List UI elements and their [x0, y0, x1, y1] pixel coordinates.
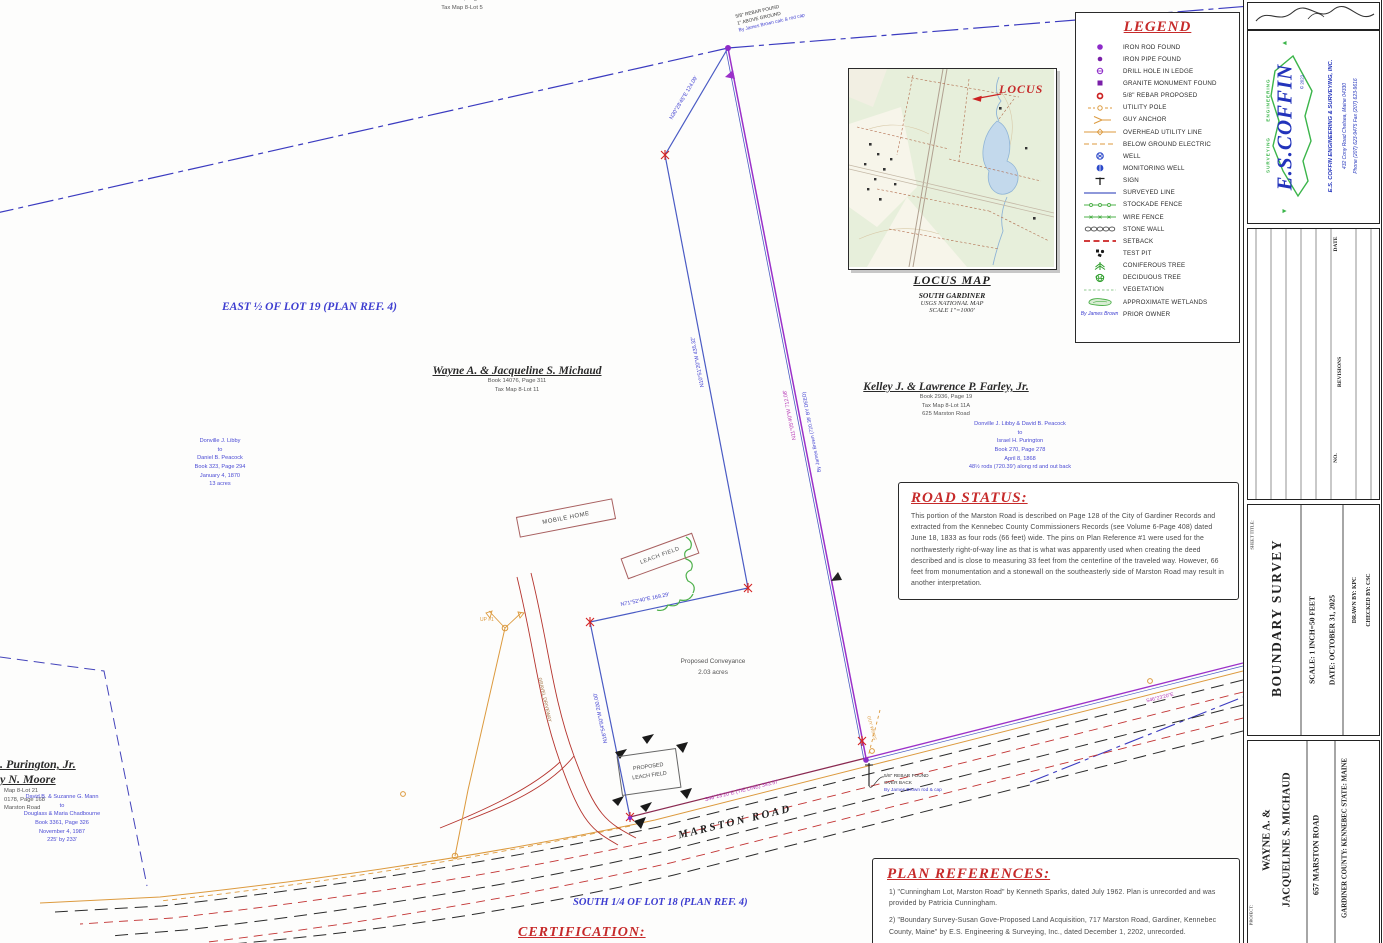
legend-label: WELL — [1123, 153, 1141, 160]
legend-label: TEST PIT — [1123, 250, 1152, 257]
note-line: 5/8" REBAR FOUND — [884, 773, 942, 780]
revisions-no-header: NO. — [1333, 453, 1339, 463]
legend-label: VEGETATION — [1123, 286, 1164, 293]
deed-line: to — [24, 802, 101, 811]
sheet-scale: SCALE: 1 INCH=50 FEET — [1308, 596, 1317, 684]
project-name-2: JACQUELINE S. MICHAUD — [1282, 772, 1293, 907]
locus-scale: SCALE 1"=1000' — [913, 307, 990, 314]
legend-row: GRANITE MONUMENT FOUND — [1076, 77, 1239, 89]
legend-label: IRON ROD FOUND — [1123, 44, 1180, 51]
legend-row: CONIFEROUS TREE — [1076, 260, 1239, 272]
deed-note-right: Donville J. Libby & David B. Peacock to … — [969, 420, 1071, 472]
locus-map-image — [849, 69, 1054, 267]
legend-title: LEGEND — [1076, 19, 1239, 36]
plan-reference-item: 2) "Boundary Survey-Susan Gove-Proposed … — [887, 915, 1225, 937]
legend-label: WIRE FENCE — [1123, 214, 1164, 221]
legend-panel: LEGEND IRON ROD FOUND IRON PIPE FOUND DR… — [1075, 12, 1240, 343]
company-surveying: SURVEYING — [1266, 137, 1271, 173]
legend-label: APPROXIMATE WETLANDS — [1123, 299, 1207, 306]
deed-line: April 8, 1868 — [969, 455, 1071, 464]
revisions-header: REVISIONS — [1337, 357, 1343, 387]
legend-label: SURVEYED LINE — [1123, 189, 1175, 196]
legend-row: STOCKADE FENCE — [1076, 199, 1239, 211]
deed-line: Book 270, Page 278 — [969, 446, 1071, 455]
vegetation-icon — [1076, 285, 1123, 295]
legend-label: SETBACK — [1123, 238, 1153, 245]
drill-hole-in-ledge-icon — [1076, 66, 1123, 76]
south-lot-label: SOUTH 1/4 OF LOT 18 (PLAN REF. 4) — [573, 897, 748, 908]
legend-label: UTILITY POLE — [1123, 104, 1167, 111]
sheet-title: BOUNDARY SURVEY — [1269, 539, 1285, 697]
locus-callout: LOCUS — [999, 82, 1043, 97]
monitoring-well-icon — [1076, 163, 1123, 173]
owner-tax: Tax Map 8-Lot 11A — [863, 402, 1028, 411]
legend-label: GUY ANCHOR — [1123, 116, 1167, 123]
monument-note-bottom: 5/8" REBAR FOUND OVER BACK By James Brow… — [884, 773, 942, 795]
iron-rod-found-icon — [1076, 42, 1123, 52]
stockade-fence-icon — [1076, 200, 1123, 210]
legend-label: STOCKADE FENCE — [1123, 201, 1182, 208]
legend-row: WELL — [1076, 150, 1239, 162]
owner-name: Kelley J. & Lawrence P. Farley, Jr. — [863, 381, 1028, 393]
company-name-logo: E.S.COFFIN — [1273, 64, 1298, 191]
sign-icon — [1076, 176, 1123, 186]
road-status-panel: ROAD STATUS: This portion of the Marston… — [898, 482, 1239, 600]
legend-row: TEST PIT — [1076, 247, 1239, 259]
deed-line: Book 3361, Page 326 — [24, 819, 101, 828]
legend-row: GUY ANCHOR — [1076, 114, 1239, 126]
deed-line: Donville J. Libby — [195, 437, 246, 446]
locus-subtitle: SOUTH GARDINER — [913, 291, 990, 300]
coniferous-tree-icon — [1076, 261, 1123, 271]
test-pit-icon — [1076, 248, 1123, 258]
surveyed-boundary — [590, 48, 866, 817]
project-name-1: WAYNE A. & — [1262, 809, 1273, 871]
project-label: PROJECT: — [1249, 905, 1254, 925]
deed-note-left: Donville J. Libby to Daniel B. Peacock B… — [195, 437, 246, 489]
deed-line: November 4, 1987 — [24, 828, 101, 837]
conveyance-label: Proposed Conveyance 2.03 acres — [681, 657, 746, 679]
monuments — [586, 45, 884, 822]
legend-row: By James BrownPRIOR OWNER — [1076, 308, 1239, 320]
deed-line: January 4, 1870 — [195, 472, 246, 481]
legend-label: BELOW GROUND ELECTRIC — [1123, 141, 1211, 148]
east-boundary-line — [725, 48, 866, 758]
legend-row: OVERHEAD UTILITY LINE — [1076, 126, 1239, 138]
certification-title: CERTIFICATION: — [518, 925, 646, 941]
iron-pipe-found-icon — [1076, 54, 1123, 64]
legend-row: BELOW GROUND ELECTRIC — [1076, 138, 1239, 150]
legend-row: STONE WALL — [1076, 223, 1239, 235]
deed-line: to — [969, 429, 1071, 438]
east-lot-label: EAST ½ OF LOT 19 (PLAN REF. 4) — [222, 301, 397, 313]
legend-row: SIGN — [1076, 175, 1239, 187]
legend-label: PRIOR OWNER — [1123, 311, 1170, 318]
road-status-title: ROAD STATUS: — [911, 490, 1226, 507]
abutter-topcut-note: Book 12625, Page 331 Tax Map 8-Lot 5 — [433, 0, 492, 12]
locus-source: USGS NATIONAL MAP — [913, 300, 990, 307]
note-line: OVER BACK — [884, 780, 942, 787]
boundary-survey-plan: Book 12625, Page 331 Tax Map 8-Lot 5 EAS… — [0, 0, 1383, 943]
company-copyright: © 2023 — [1300, 75, 1305, 89]
signature-cell — [1247, 2, 1380, 30]
driveway-lines — [440, 573, 636, 845]
legend-row: VEGETATION — [1076, 284, 1239, 296]
mobile-home-label: MOBILE HOME — [542, 510, 590, 525]
owner-addr: 625 Marston Road — [863, 410, 1028, 419]
legend-label: GRANITE MONUMENT FOUND — [1123, 80, 1217, 87]
company-phone: Phone (207) 623-9475 Fax (207) 623-9616 — [1353, 78, 1359, 173]
legend-row: 5/8" REBAR PROPOSED — [1076, 90, 1239, 102]
sheet-date: DATE: OCTOBER 31, 2025 — [1328, 595, 1337, 685]
signature-icon — [1248, 3, 1379, 29]
legend-row: SETBACK — [1076, 235, 1239, 247]
road-status-body: This portion of the Marston Road is desc… — [911, 511, 1226, 589]
utility-pole-icon — [1076, 103, 1123, 113]
below-ground-electric-icon — [1076, 139, 1123, 149]
owner-name: y N. Moore — [0, 772, 76, 787]
surveyed-line-icon — [1076, 188, 1123, 198]
company-logo-cell — [1247, 30, 1380, 224]
legend-row: DECIDUOUS TREE — [1076, 272, 1239, 284]
plan-references-title: PLAN REFERENCES: — [887, 866, 1225, 883]
guy-anchor-icon — [1076, 115, 1123, 125]
legend-label: DECIDUOUS TREE — [1123, 274, 1181, 281]
wire-fence-icon — [1076, 212, 1123, 222]
tie-dashdot-line — [1030, 697, 1243, 782]
revisions-grid — [1248, 229, 1379, 499]
legend-row: IRON PIPE FOUND — [1076, 53, 1239, 65]
note-line: Tax Map 8-Lot 5 — [433, 4, 492, 13]
plan-references-panel: PLAN REFERENCES: 1) "Cunningham Lot, Mar… — [872, 858, 1240, 943]
legend-label: STONE WALL — [1123, 226, 1165, 233]
plan-reference-item: 1) "Cunningham Lot, Marston Road" by Ken… — [887, 887, 1225, 909]
deed-line: Daniel B. Peacock — [195, 454, 246, 463]
locus-title: LOCUS MAP — [913, 273, 990, 288]
sheet-drawn-by: DRAWN BY: KPC — [1352, 577, 1358, 624]
locus-caption: LOCUS MAP SOUTH GARDINER USGS NATIONAL M… — [913, 273, 990, 314]
locus-map: LOCUS — [848, 68, 1057, 270]
legend-row: IRON ROD FOUND — [1076, 41, 1239, 53]
logo-triangle-icon: ▲ — [1282, 40, 1289, 47]
project-address: 657 MARSTON ROAD — [1312, 815, 1321, 895]
legend-row: APPROXIMATE WETLANDS — [1076, 296, 1239, 308]
deciduous-tree-icon — [1076, 273, 1123, 283]
deed-line: to — [195, 446, 246, 455]
owner-book: Book 2936, Page 19 — [863, 393, 1028, 402]
logo-triangle-icon: ▼ — [1282, 208, 1289, 215]
legend-label: IRON PIPE FOUND — [1123, 56, 1181, 63]
deed-line: 225' by 233' — [24, 836, 101, 845]
owner-tax: Tax Map 8-Lot 11 — [433, 386, 602, 395]
deed-line: 48½ rods (720.39') along rd and out back — [969, 463, 1071, 472]
well-icon — [1076, 151, 1123, 161]
note-line: By James Brown rod & cap — [884, 787, 942, 794]
title-block — [1243, 0, 1383, 943]
conveyance-line: Proposed Conveyance — [681, 657, 746, 668]
company-engineering: ENGINEERING — [1266, 78, 1271, 121]
proposed-leach-field-outline: PROPOSED LEACH FIELD — [617, 748, 682, 796]
deed-line: Donville J. Libby & David B. Peacock — [969, 420, 1071, 429]
legend-label: OVERHEAD UTILITY LINE — [1123, 129, 1202, 136]
legend-label: CONIFEROUS TREE — [1123, 262, 1185, 269]
owner-name: Wayne A. & Jacqueline S. Michaud — [433, 365, 602, 377]
owner-name: . Purington, Jr. — [0, 757, 76, 772]
legend-row: UTILITY POLE — [1076, 102, 1239, 114]
legend-label: MONITORING WELL — [1123, 165, 1185, 172]
project-city-county-state: GARDINER COUNTY: KENNEBEC STATE: MAINE — [1342, 758, 1349, 918]
stone-wall-icon — [1076, 224, 1123, 234]
revisions-date-header: DATE — [1333, 237, 1339, 252]
legend-label: 5/8" REBAR PROPOSED — [1123, 92, 1197, 99]
owner-book: Book 14076, Page 311 — [433, 377, 602, 386]
michaud-parcel-label: Wayne A. & Jacqueline S. Michaud Book 14… — [433, 365, 602, 394]
granite-monument-found-icon — [1076, 78, 1123, 88]
rebar-proposed-icon — [1076, 91, 1123, 101]
utility-pole-tag: UP #1 — [480, 617, 494, 623]
sheet-title-label: SHEET TITLE: — [1250, 520, 1255, 549]
setback-icon — [1076, 236, 1123, 246]
company-address: 432 Cony Road Chelsea, Maine 04330 — [1342, 83, 1348, 169]
row-line-east — [866, 663, 1243, 761]
prior-owner-icon: By James Brown — [1076, 311, 1123, 317]
deed-line: Israel H. Purington — [969, 437, 1071, 446]
legend-label: DRILL HOLE IN LEDGE — [1123, 68, 1193, 75]
maine-outline-icon — [1248, 31, 1379, 223]
utility-branch — [401, 611, 1153, 859]
sheet-checked-by: CHECKED BY: CSC — [1366, 573, 1372, 626]
deed-line: Douglass & Maria Chadbourne — [24, 810, 101, 819]
legend-row: WIRE FENCE — [1076, 211, 1239, 223]
conveyance-line: 2.03 acres — [681, 668, 746, 679]
revisions-table[interactable] — [1247, 228, 1380, 500]
deed-line: David B. & Suzanne G. Mann — [24, 793, 101, 802]
legend-row: DRILL HOLE IN LEDGE — [1076, 65, 1239, 77]
deed-line: 13 acres — [195, 480, 246, 489]
farley-parcel-label: Kelley J. & Lawrence P. Farley, Jr. Book… — [863, 381, 1028, 419]
approximate-wetlands-icon — [1076, 296, 1123, 308]
overhead-utility-line-icon — [1076, 127, 1123, 137]
legend-label: SIGN — [1123, 177, 1139, 184]
legend-row: MONITORING WELL — [1076, 162, 1239, 174]
deed-note-bottom-left: David B. & Suzanne G. Mann to Douglass &… — [24, 793, 101, 845]
legend-row: SURVEYED LINE — [1076, 187, 1239, 199]
company-inc: E.S. COFFIN ENGINEERING & SURVEYING, INC… — [1328, 60, 1334, 193]
deed-line: Book 323, Page 294 — [195, 463, 246, 472]
